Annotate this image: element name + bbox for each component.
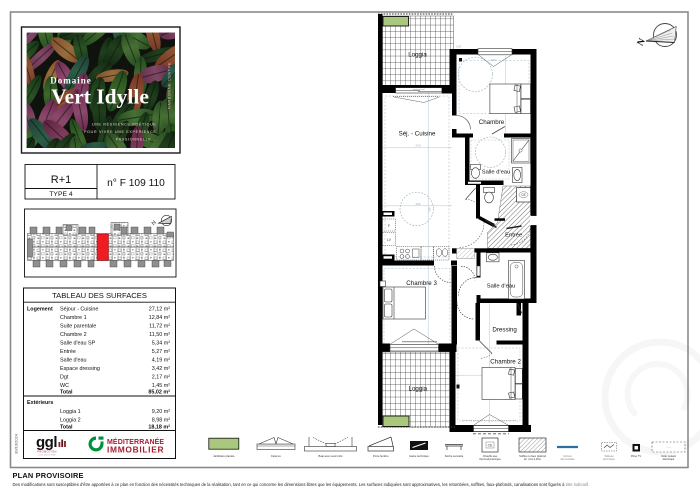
svg-text:Gaine technique: Gaine technique <box>409 454 429 458</box>
svg-text:électrique: électrique <box>663 457 675 461</box>
svg-text:30/10/2024: 30/10/2024 <box>14 433 19 454</box>
svg-text:Entrée: Entrée <box>60 349 76 355</box>
svg-text:Extérieurs: Extérieurs <box>27 400 53 406</box>
svg-text:Total: Total <box>60 390 73 396</box>
svg-text:2,60: 2,60 <box>490 58 496 62</box>
svg-text:TABLEAU DES SURFACES: TABLEAU DES SURFACES <box>52 291 147 300</box>
svg-text:3,42 m²: 3,42 m² <box>152 366 170 372</box>
svg-text:Faïence: Faïence <box>271 454 281 458</box>
svg-text:5,27 m²: 5,27 m² <box>152 349 170 355</box>
svg-text:- - -: - - - <box>666 447 670 450</box>
svg-text:F: F <box>388 224 390 228</box>
svg-text:COLLECTION: COLLECTION <box>39 455 56 457</box>
svg-text:Loggia: Loggia <box>408 52 427 59</box>
svg-text:27,12 m²: 27,12 m² <box>149 307 170 313</box>
svg-text:n° F 109 110: n° F 109 110 <box>107 178 165 189</box>
svg-text:0,97: 0,97 <box>456 45 462 49</box>
svg-text:18,18 m²: 18,18 m² <box>148 425 170 431</box>
svg-text:Des modifications sont suscept: Des modifications sont susceptibles d'êt… <box>13 482 590 487</box>
svg-text:Chambre 3: Chambre 3 <box>406 280 437 287</box>
svg-text:Chambre 1: Chambre 1 <box>60 315 87 321</box>
svg-text:PROMOTION: PROMOTION <box>37 450 57 454</box>
svg-text:Vert Idylle: Vert Idylle <box>51 85 149 109</box>
svg-text:3,60: 3,60 <box>415 202 421 206</box>
svg-text:TYPE 4: TYPE 4 <box>49 191 73 198</box>
svg-text:POUR VIVRE UNE EXPÉRIENCE: POUR VIVRE UNE EXPÉRIENCE <box>84 129 156 134</box>
svg-text:Loggia 2: Loggia 2 <box>60 418 81 424</box>
svg-text:Espace dressing: Espace dressing <box>60 366 100 372</box>
svg-text:NARBONNE CENTRE: NARBONNE CENTRE <box>168 62 172 109</box>
svg-text:Séj. - Cuisine: Séj. - Cuisine <box>399 131 436 138</box>
svg-text:4,70: 4,70 <box>415 143 421 147</box>
svg-text:Dressing: Dressing <box>492 327 517 334</box>
svg-text:UNE RÉSIDENCE POÉTIQUE: UNE RÉSIDENCE POÉTIQUE <box>92 122 157 127</box>
svg-text:9,20 m²: 9,20 m² <box>152 409 170 415</box>
svg-text:12,84 m²: 12,84 m² <box>149 315 170 321</box>
svg-text:Séjour - Cuisine: Séjour - Cuisine <box>60 307 98 313</box>
svg-text:CE: CE <box>521 193 525 197</box>
svg-text:thermodynamique: thermodynamique <box>479 457 501 461</box>
svg-text:Salle d'eau: Salle d'eau <box>487 284 516 290</box>
svg-text:PLAN PROVISOIRE: PLAN PROVISOIRE <box>13 471 84 480</box>
svg-text:ggl: ggl <box>36 434 57 451</box>
svg-text:Logement: Logement <box>27 307 53 313</box>
svg-text:1,45 m²: 1,45 m² <box>152 383 170 389</box>
svg-text:WC: WC <box>60 383 69 389</box>
svg-text:Prise TV: Prise TV <box>631 454 641 458</box>
svg-text:Chambre 2: Chambre 2 <box>490 359 521 366</box>
svg-text:repère au sol: repère au sol <box>413 89 425 91</box>
svg-text:11,50 m²: 11,50 m² <box>149 332 170 338</box>
svg-text:2,17 m²: 2,17 m² <box>152 374 170 380</box>
svg-text:CE: CE <box>488 444 493 448</box>
svg-text:Baie avec seuil vitré: Baie avec seuil vitré <box>319 454 343 458</box>
svg-text:85,02 m²: 85,02 m² <box>148 390 170 396</box>
svg-text:5,34 m²: 5,34 m² <box>152 341 170 347</box>
svg-text:Loggia: Loggia <box>409 386 428 393</box>
svg-text:7,40: 7,40 <box>428 207 432 213</box>
svg-text:4,19 m²: 4,19 m² <box>152 358 170 364</box>
svg-text:Entrée: Entrée <box>505 233 522 239</box>
svg-text:démontable: démontable <box>560 457 575 461</box>
svg-text:Porte fenêtre: Porte fenêtre <box>373 454 389 458</box>
svg-text:Salle d'eau: Salle d'eau <box>482 170 511 176</box>
svg-text:8,98 m²: 8,98 m² <box>152 418 170 424</box>
svg-text:Salle d'eau: Salle d'eau <box>60 358 87 364</box>
svg-text:IMMOBILIER: IMMOBILIER <box>107 445 164 455</box>
svg-text:PASSIONNELLE...: PASSIONNELLE... <box>116 138 157 142</box>
svg-text:Chambre: Chambre <box>479 119 505 126</box>
svg-text:Suite parentale: Suite parentale <box>60 324 96 330</box>
svg-text:Chambre 2: Chambre 2 <box>60 332 87 338</box>
svg-text:Ht. mini 2,20m: Ht. mini 2,20m <box>524 457 542 461</box>
svg-text:Loggia 1: Loggia 1 <box>60 409 81 415</box>
svg-text:Total: Total <box>60 425 73 431</box>
svg-text:Sèche serviette: Sèche serviette <box>445 454 464 458</box>
svg-text:11,72 m²: 11,72 m² <box>149 324 170 330</box>
svg-text:Dgt: Dgt <box>60 374 69 380</box>
svg-text:R+1: R+1 <box>51 174 72 186</box>
svg-text:Jardinière plantée: Jardinière plantée <box>213 454 235 458</box>
svg-text:électrique: électrique <box>603 457 615 461</box>
svg-text:Salle d'eau SP: Salle d'eau SP <box>60 341 96 347</box>
